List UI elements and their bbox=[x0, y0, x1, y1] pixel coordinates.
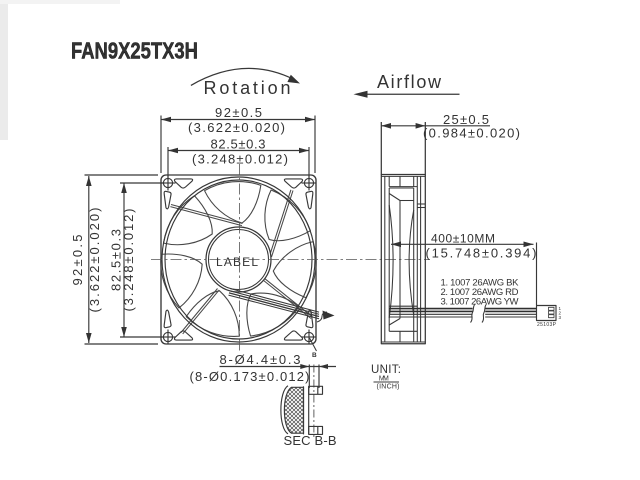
svg-text:(3.248±0.012): (3.248±0.012) bbox=[121, 209, 136, 312]
svg-text:Airflow: Airflow bbox=[377, 72, 442, 92]
svg-text:(8-Ø0.173±0.012): (8-Ø0.173±0.012) bbox=[190, 369, 310, 384]
svg-text:92±0.5: 92±0.5 bbox=[215, 105, 262, 120]
svg-text:LABEL: LABEL bbox=[216, 255, 258, 269]
svg-text:82.5±0.3: 82.5±0.3 bbox=[211, 137, 266, 152]
svg-text:SEC B-B: SEC B-B bbox=[284, 433, 337, 448]
svg-text:(INCH): (INCH) bbox=[377, 384, 400, 391]
svg-text:25103P: 25103P bbox=[537, 322, 557, 328]
svg-text:400±10MM: 400±10MM bbox=[431, 232, 495, 246]
svg-text:3. 1007 26AWG YW: 3. 1007 26AWG YW bbox=[441, 297, 519, 308]
svg-text:MM: MM bbox=[379, 376, 389, 383]
svg-text:92±0.5: 92±0.5 bbox=[70, 235, 85, 286]
svg-text:Rotation: Rotation bbox=[204, 78, 291, 98]
svg-text:FAN9X25TX3H: FAN9X25TX3H bbox=[71, 38, 198, 64]
svg-text:(15.748±0.394): (15.748±0.394) bbox=[426, 246, 537, 261]
svg-text:3: 3 bbox=[559, 315, 562, 320]
svg-text:UNIT:: UNIT: bbox=[371, 364, 401, 376]
svg-text:B: B bbox=[312, 352, 317, 359]
svg-text:(3.248±0.012): (3.248±0.012) bbox=[192, 152, 288, 167]
svg-text:(3.622±0.020): (3.622±0.020) bbox=[188, 120, 285, 135]
svg-text:(0.984±0.020): (0.984±0.020) bbox=[423, 126, 520, 141]
svg-text:8-Ø4.4±0.3: 8-Ø4.4±0.3 bbox=[220, 352, 301, 367]
